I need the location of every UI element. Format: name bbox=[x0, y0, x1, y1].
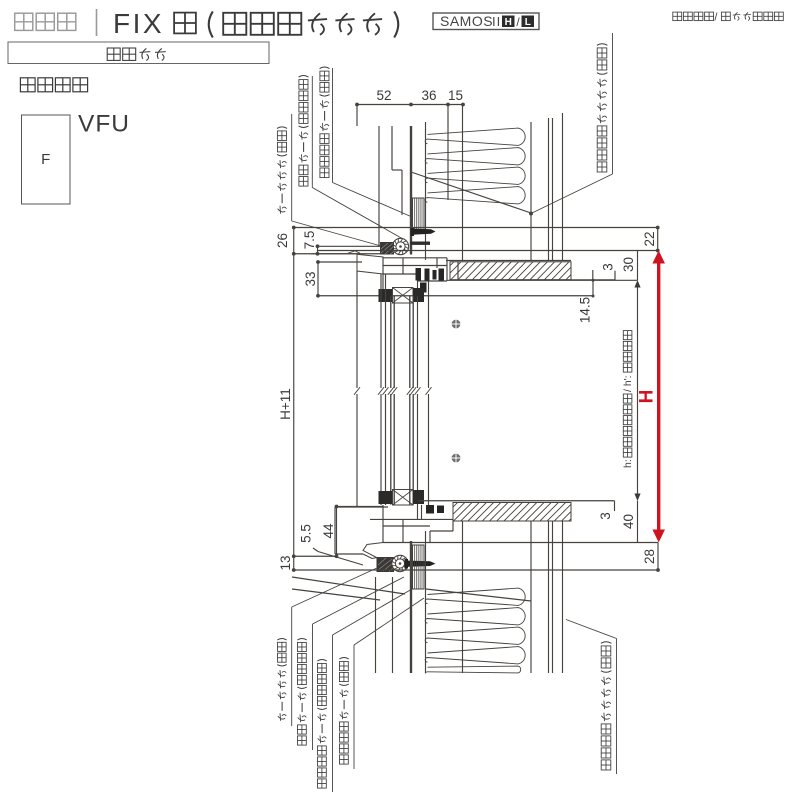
svg-text:44: 44 bbox=[321, 523, 336, 539]
svg-text:26: 26 bbox=[275, 233, 290, 248]
svg-text:15: 15 bbox=[448, 88, 463, 103]
svg-text:L: L bbox=[525, 17, 531, 28]
svg-text:FIX: FIX bbox=[113, 8, 164, 39]
svg-text:II: II bbox=[492, 14, 501, 29]
svg-text:13: 13 bbox=[278, 555, 293, 570]
svg-text:h:: h: bbox=[622, 459, 634, 468]
svg-text:3: 3 bbox=[598, 512, 613, 520]
svg-text:28: 28 bbox=[642, 549, 657, 564]
svg-text:VFU: VFU bbox=[78, 111, 130, 138]
svg-text:52: 52 bbox=[376, 88, 391, 103]
svg-text:/ h':: / h': bbox=[622, 375, 634, 392]
svg-text:36: 36 bbox=[421, 88, 436, 103]
svg-text:30: 30 bbox=[621, 257, 636, 272]
svg-text:3: 3 bbox=[601, 263, 616, 271]
svg-text:22: 22 bbox=[642, 231, 657, 246]
svg-text:H: H bbox=[505, 17, 512, 28]
svg-text:H: H bbox=[637, 390, 658, 404]
svg-text:33: 33 bbox=[303, 271, 318, 286]
svg-text:SAMOS: SAMOS bbox=[440, 13, 493, 29]
svg-text:7.5: 7.5 bbox=[302, 231, 317, 250]
svg-text:40: 40 bbox=[621, 514, 636, 529]
svg-text:14.5: 14.5 bbox=[578, 297, 593, 323]
svg-text:5.5: 5.5 bbox=[299, 524, 314, 543]
svg-text:H+11: H+11 bbox=[278, 388, 293, 420]
svg-text:F: F bbox=[41, 151, 50, 168]
